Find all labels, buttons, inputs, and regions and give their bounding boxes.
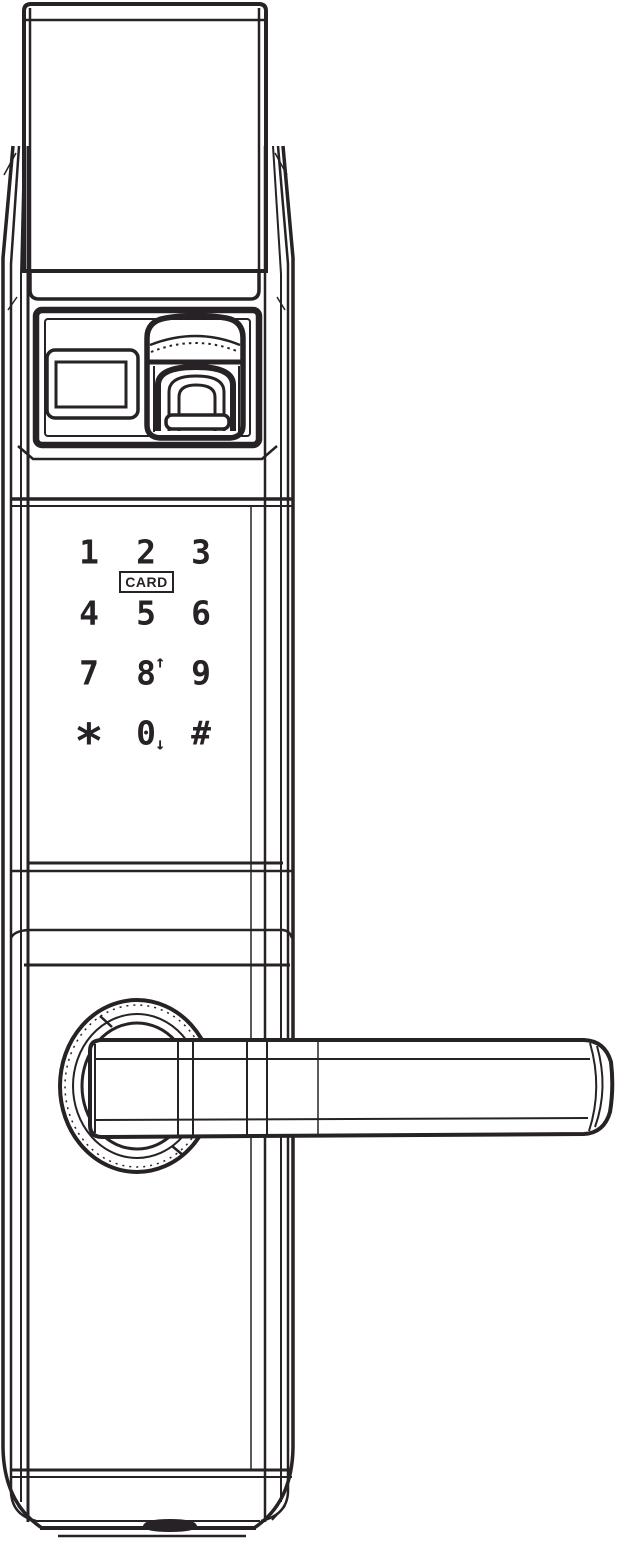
- card-reader-label[interactable]: CARD: [119, 571, 174, 593]
- key-3[interactable]: 3: [191, 536, 211, 569]
- fingerprint-reader-icon[interactable]: [147, 316, 243, 439]
- door-lock-drawing: 1 2 3 CARD 4 5 6 7 8 ↑ 9 * 0 ↓ #: [0, 0, 617, 1541]
- key-2[interactable]: 2: [136, 536, 156, 569]
- key-star[interactable]: *: [75, 718, 104, 766]
- lock-line-art: [0, 0, 617, 1541]
- key-6[interactable]: 6: [191, 597, 211, 630]
- key-9[interactable]: 9: [191, 657, 211, 690]
- key-5[interactable]: 5: [136, 597, 156, 630]
- lever-handle[interactable]: [60, 1000, 612, 1172]
- key-1[interactable]: 1: [79, 536, 99, 569]
- display-screen: [47, 350, 138, 418]
- usb-slot: [143, 1519, 197, 1532]
- key-hash[interactable]: #: [191, 717, 211, 750]
- top-cover-panel: [24, 4, 266, 299]
- key-4[interactable]: 4: [79, 597, 99, 630]
- down-arrow-icon: ↓: [155, 737, 165, 754]
- up-arrow-icon: ↑: [155, 655, 165, 672]
- key-0[interactable]: 0 ↓: [136, 717, 156, 750]
- key-7[interactable]: 7: [79, 657, 99, 690]
- key-8[interactable]: 8 ↑: [136, 657, 156, 690]
